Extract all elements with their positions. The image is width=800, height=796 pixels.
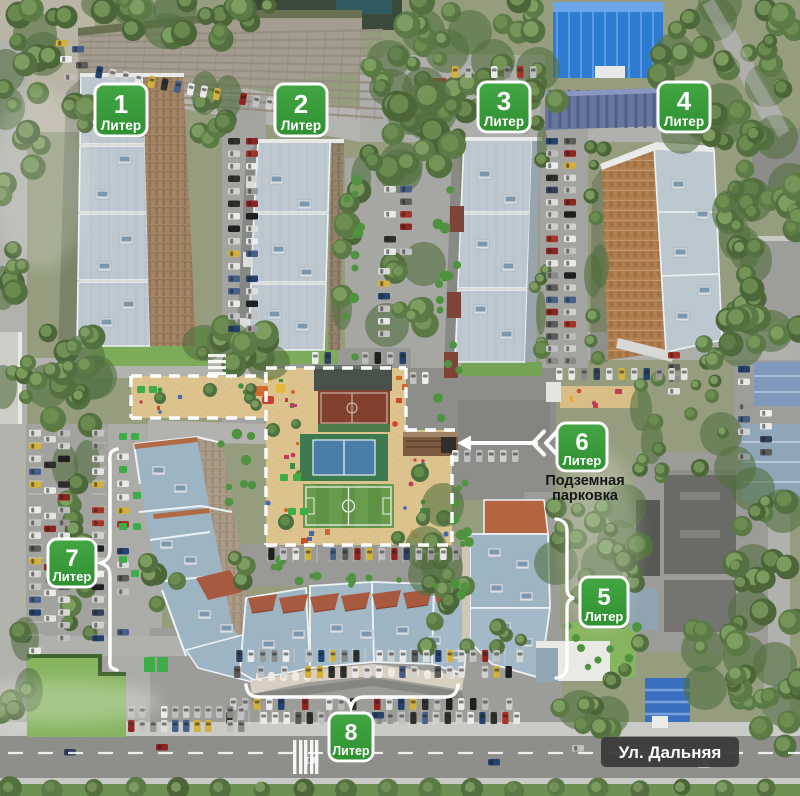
svg-text:4: 4 <box>677 86 692 116</box>
svg-text:Литер: Литер <box>332 744 370 758</box>
svg-text:Литер: Литер <box>281 118 321 133</box>
svg-text:Литер: Литер <box>484 114 524 129</box>
svg-text:Литер: Литер <box>585 609 624 624</box>
svg-text:1: 1 <box>114 89 128 119</box>
svg-text:8: 8 <box>345 719 358 745</box>
svg-text:Литер: Литер <box>53 569 92 584</box>
svg-text:Литер: Литер <box>664 114 704 129</box>
svg-text:парковка: парковка <box>552 488 619 504</box>
svg-text:3: 3 <box>497 86 511 116</box>
svg-text:Литер: Литер <box>563 453 602 468</box>
svg-text:7: 7 <box>65 545 78 572</box>
svg-text:6: 6 <box>575 429 588 456</box>
svg-text:Литер: Литер <box>101 118 141 133</box>
svg-text:Ул. Дальняя: Ул. Дальняя <box>619 743 722 762</box>
svg-text:5: 5 <box>597 584 610 611</box>
svg-text:2: 2 <box>294 89 308 119</box>
svg-text:Подземная: Подземная <box>545 473 624 489</box>
